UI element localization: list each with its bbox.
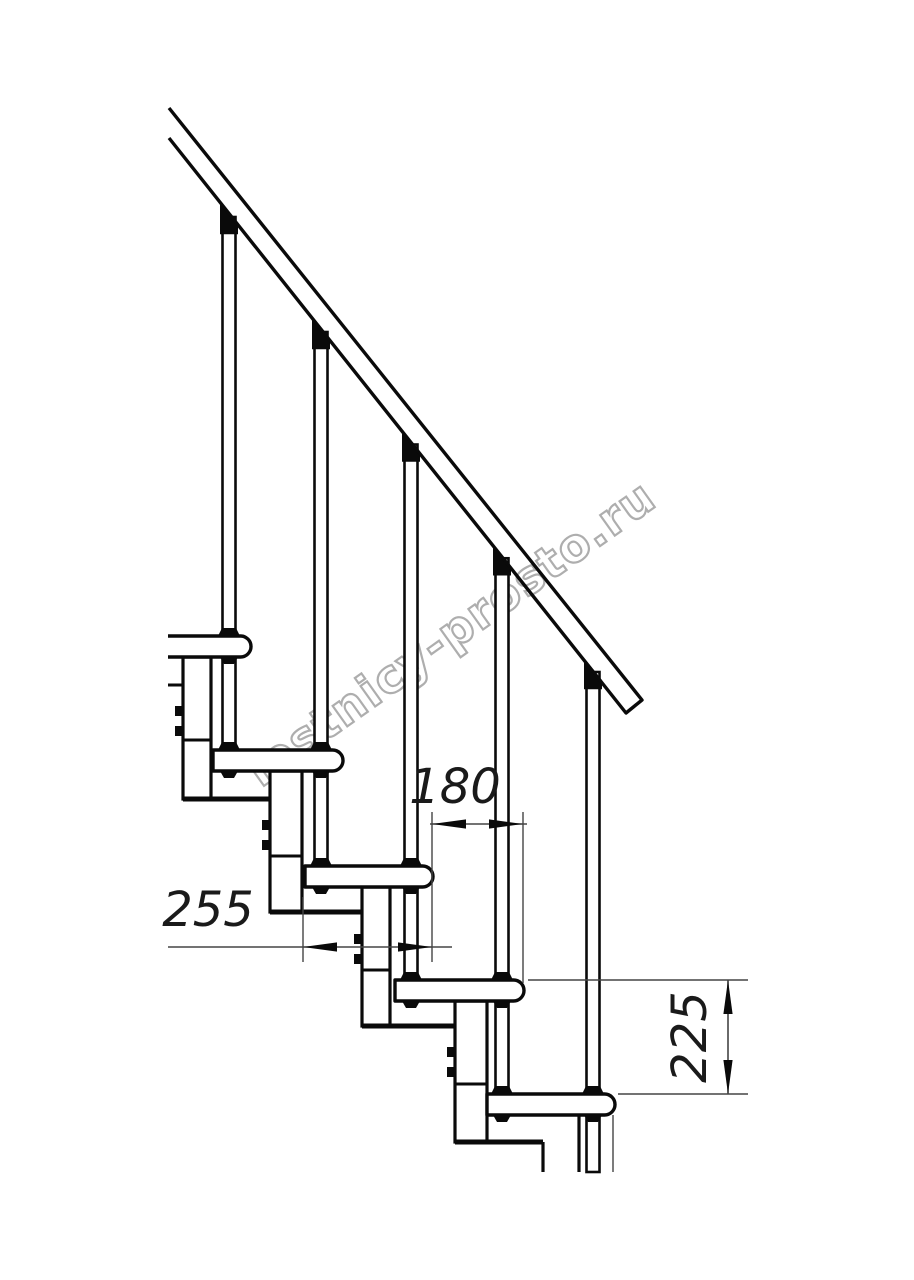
tread-2: [213, 750, 343, 771]
tread-1: [168, 636, 251, 657]
baluster-1: [223, 217, 236, 744]
tread-board: [487, 1094, 615, 1115]
dimension-label-step-rise: 225: [662, 991, 718, 1083]
module-bolt: [175, 726, 183, 736]
baluster-pipe: [223, 217, 236, 744]
baluster-pipe: [405, 445, 418, 975]
baluster-nut: [402, 1001, 420, 1008]
drawing-page: lestnicy-prosto.ru180255225: [0, 0, 914, 1280]
module-bolt: [262, 840, 270, 850]
module-column: [270, 771, 302, 912]
module-bolt: [354, 954, 362, 964]
watermark-text: lestnicy-prosto.ru: [236, 469, 666, 797]
arrowhead: [303, 942, 337, 951]
arrowhead: [432, 819, 466, 828]
dimension-label-step-run: 180: [409, 759, 501, 815]
baluster-2: [315, 332, 328, 860]
module-column: [362, 887, 390, 1026]
tread-4: [395, 980, 524, 1001]
staircase-technical-drawing: lestnicy-prosto.ru180255225: [0, 0, 914, 1280]
baluster-nut: [220, 771, 238, 778]
tread-5: [487, 1094, 615, 1115]
module-column: [183, 657, 211, 799]
tread-3: [305, 866, 433, 887]
dimension-step-rise: 225: [528, 980, 748, 1094]
tread-board: [395, 980, 524, 1001]
baluster-nut: [312, 887, 330, 894]
baluster-nut: [493, 1115, 511, 1122]
support-module-2: [262, 771, 362, 912]
arrowhead: [723, 1060, 732, 1094]
module-bolt: [262, 820, 270, 830]
baluster-pipe: [315, 332, 328, 860]
dimension-label-tread-depth: 255: [162, 882, 254, 938]
module-bolt: [354, 934, 362, 944]
baluster-3: [405, 445, 418, 975]
module-bolt: [175, 706, 183, 716]
module-column: [455, 1001, 487, 1142]
module-bolt: [447, 1067, 455, 1077]
arrowhead: [723, 980, 732, 1014]
tread-board: [168, 636, 251, 657]
watermark: lestnicy-prosto.ru: [236, 469, 666, 797]
tread-board: [305, 866, 433, 887]
tread-board: [213, 750, 343, 771]
module-bolt: [447, 1047, 455, 1057]
